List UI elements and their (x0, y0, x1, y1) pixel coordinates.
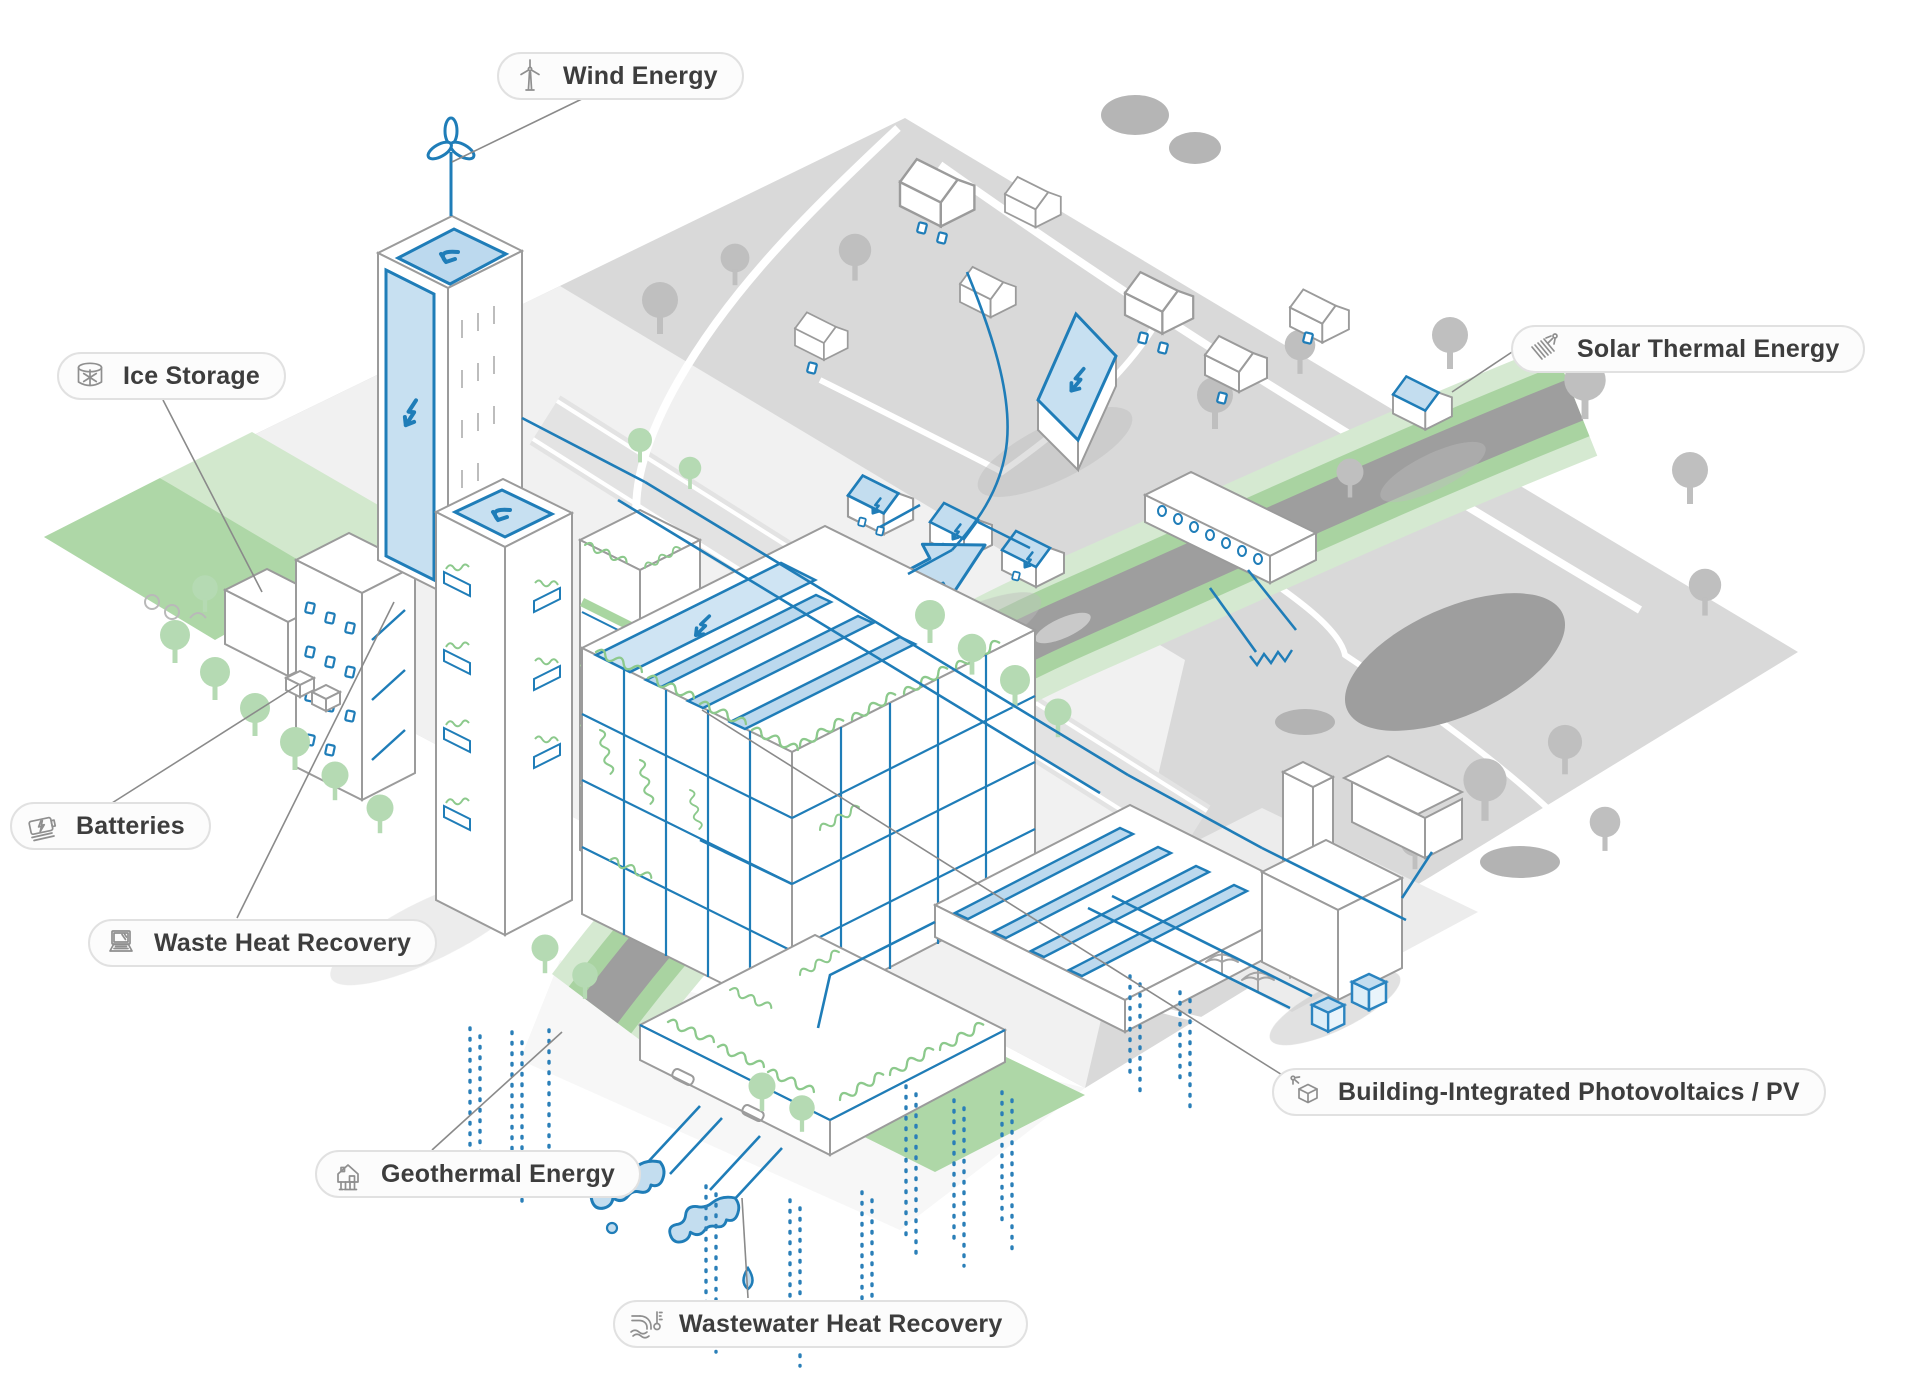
sewage-pipe-thermometer-icon (625, 1303, 667, 1345)
callout-label: Wind Energy (563, 62, 718, 91)
callout-geothermal-energy[interactable]: Geothermal Energy (315, 1150, 641, 1198)
callout-ice-storage[interactable]: Ice Storage (57, 352, 286, 400)
callout-wind-energy[interactable]: Wind Energy (497, 52, 744, 100)
cube-sun-icon (1284, 1071, 1326, 1113)
callout-label: Wastewater Heat Recovery (679, 1310, 1002, 1339)
callout-label: Solar Thermal Energy (1577, 335, 1839, 364)
wind-turbine (425, 118, 476, 216)
infographic-canvas: Wind Energy Ice Storage Solar Thermal En… (0, 0, 1920, 1398)
district-illustration (0, 0, 1920, 1398)
callout-building-integrated-pv[interactable]: Building-Integrated Photovoltaics / PV (1272, 1068, 1826, 1116)
callout-waste-heat-recovery[interactable]: Waste Heat Recovery (88, 919, 437, 967)
solar-collector-sun-icon (1523, 328, 1565, 370)
callout-label: Batteries (76, 812, 185, 841)
apartment-block (296, 533, 415, 800)
battery-bolt-icon (22, 805, 64, 847)
callout-label: Building-Integrated Photovoltaics / PV (1338, 1078, 1800, 1107)
callout-label: Geothermal Energy (381, 1160, 615, 1189)
wind-turbine-icon (509, 55, 551, 97)
callout-solar-thermal-energy[interactable]: Solar Thermal Energy (1511, 325, 1865, 373)
callout-batteries[interactable]: Batteries (10, 802, 211, 850)
callout-wastewater-heat-recovery[interactable]: Wastewater Heat Recovery (613, 1300, 1028, 1348)
laptop-icon (100, 922, 142, 964)
planter-tower (436, 479, 572, 935)
house-ground-probes-icon (327, 1153, 369, 1195)
ice-storage-tank-icon (69, 355, 111, 397)
callout-label: Waste Heat Recovery (154, 929, 411, 958)
callout-label: Ice Storage (123, 362, 260, 391)
